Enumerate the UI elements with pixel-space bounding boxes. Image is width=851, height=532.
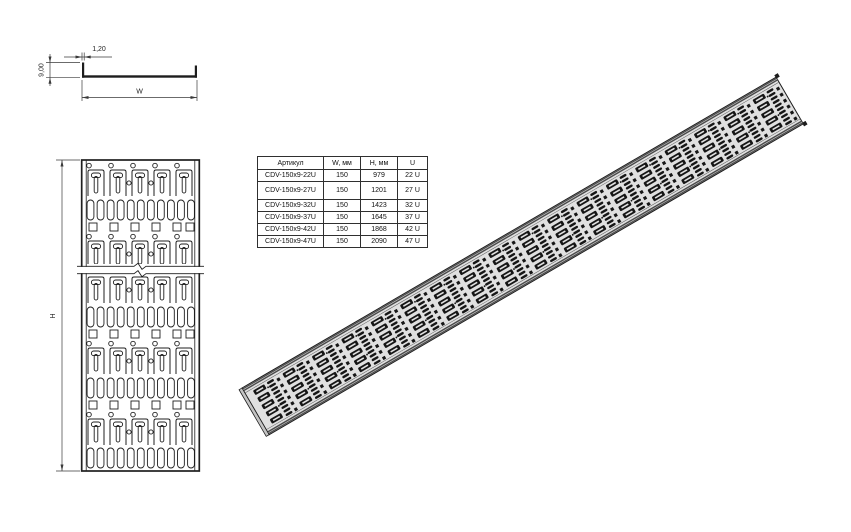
width-cell: 150 [324,224,361,236]
profile-base [82,75,197,77]
dim-arrow [61,465,64,472]
profile-right-flange [195,66,197,78]
units-cell: 37 U [398,212,428,224]
width-cell: 150 [324,236,361,248]
thickness-label: 1,20 [92,46,106,53]
profile-left-flange [82,63,84,78]
width-cell: 150 [324,212,361,224]
height-cell: 979 [361,170,398,182]
dim-arrow [76,56,83,59]
spec-table-row: CDV-150x9-22U15097922 U [258,170,428,182]
col-header-height: H, мм [361,157,398,170]
spec-table-row: CDV-150x9-32U150142332 U [258,200,428,212]
panel-outline [82,160,200,471]
height-cell: 1201 [361,182,398,200]
height-cell: 1868 [361,224,398,236]
width-label: W [136,89,143,96]
dim-arrow [49,57,52,63]
spec-table-header-row: Артикул W, мм H, мм U [258,157,428,170]
spec-table-row: CDV-150x9-37U150164537 U [258,212,428,224]
dim-arrow [84,56,91,59]
units-cell: 42 U [398,224,428,236]
iso-far-corner [802,121,807,126]
height-cell: 2090 [361,236,398,248]
cross-section-view: 1,20 9,00 W [39,46,198,101]
article-cell: CDV-150x9-27U [258,182,324,200]
width-cell: 150 [324,170,361,182]
col-header-units: U [398,157,428,170]
dim-arrow [49,78,52,84]
article-cell: CDV-150x9-37U [258,212,324,224]
units-cell: 47 U [398,236,428,248]
panel-height-label: H [50,313,57,318]
units-cell: 27 U [398,182,428,200]
units-cell: 22 U [398,170,428,182]
article-cell: CDV-150x9-42U [258,224,324,236]
col-header-width: W, мм [324,157,361,170]
profile-height-dimension [46,54,80,86]
dim-arrow [61,160,64,167]
spec-table: Артикул W, мм H, мм U CDV-150x9-22U15097… [257,156,428,248]
spec-table-row: CDV-150x9-42U150186842 U [258,224,428,236]
col-header-article: Артикул [258,157,324,170]
panel-height-dimension [56,160,80,471]
dim-arrow [191,96,198,99]
article-cell: CDV-150x9-22U [258,170,324,182]
height-cell: 1645 [361,212,398,224]
technical-drawing-canvas: 1,20 9,00 W [0,0,851,532]
dim-arrow [82,96,89,99]
article-cell: CDV-150x9-47U [258,236,324,248]
spec-table-row: CDV-150x9-47U150209047 U [258,236,428,248]
front-view: H [50,160,204,471]
drawing-sheet: 1,20 9,00 W [0,0,851,532]
spec-table-row: CDV-150x9-27U150120127 U [258,182,428,200]
article-cell: CDV-150x9-32U [258,200,324,212]
isometric-view [238,73,808,438]
height-cell: 1423 [361,200,398,212]
width-cell: 150 [324,182,361,200]
width-cell: 150 [324,200,361,212]
profile-height-label: 9,00 [39,63,46,77]
units-cell: 32 U [398,200,428,212]
